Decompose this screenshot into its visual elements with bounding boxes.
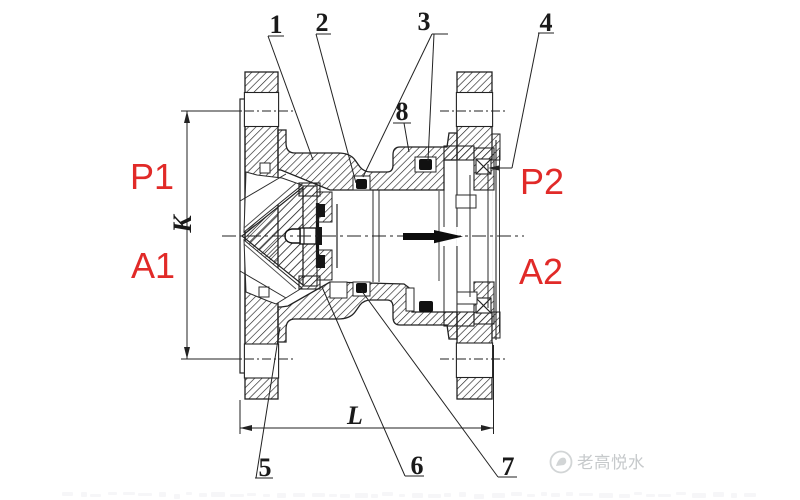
svg-text:1: 1: [270, 10, 283, 39]
svg-text:A1: A1: [131, 245, 175, 286]
svg-text:A2: A2: [519, 251, 563, 292]
svg-text:2: 2: [316, 8, 329, 37]
svg-text:L: L: [346, 401, 363, 430]
svg-text:P2: P2: [520, 161, 564, 202]
svg-text:3: 3: [418, 7, 431, 36]
svg-text:K: K: [168, 214, 197, 234]
svg-text:8: 8: [396, 97, 409, 126]
svg-text:P1: P1: [130, 156, 174, 197]
svg-text:老高悦水: 老高悦水: [577, 453, 645, 472]
